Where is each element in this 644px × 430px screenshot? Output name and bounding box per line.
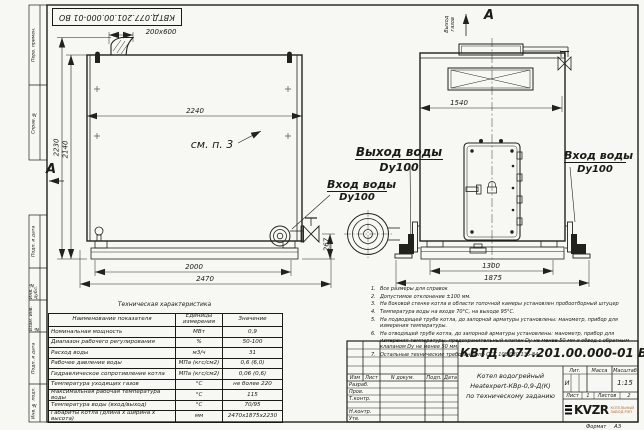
row-tkontr: Т.контр. bbox=[349, 396, 371, 402]
product-name-line2: Heatexpert-КВр-0,9-Д(К) bbox=[459, 383, 562, 389]
lit-value: И bbox=[563, 379, 571, 387]
frame-label-perv-primen: Перв. примен. bbox=[28, 6, 40, 84]
dim-2230: 2230 bbox=[54, 133, 61, 163]
sheet-value: 1 bbox=[582, 393, 594, 399]
tech-row-unit: МПа (кгс/см2) bbox=[176, 369, 223, 380]
row-razrab: Разраб. bbox=[349, 382, 369, 388]
tech-row-value: 70/95 bbox=[223, 401, 282, 412]
tech-row-unit: °С bbox=[176, 401, 223, 412]
format-label: Формат bbox=[586, 424, 606, 430]
col-list: Лист bbox=[363, 375, 380, 381]
tech-row-value: не более 220 bbox=[223, 380, 282, 391]
drawing-sheet: КВТД.077.201.00.000-01 ВО Перв. примен. … bbox=[0, 0, 644, 430]
dim-2000: 2000 bbox=[176, 264, 212, 271]
view-label-a-top: А bbox=[484, 9, 494, 22]
frame-label-sprav-no: Справ. № bbox=[28, 86, 40, 159]
dim-2140: 2140 bbox=[63, 135, 70, 165]
tech-row-name: Номинальная мощность bbox=[49, 327, 176, 338]
top-stamp-designation: КВТД.077.201.00.000-01 ВО bbox=[59, 13, 175, 22]
format-value: А3 bbox=[614, 424, 621, 430]
dim-1540: 1540 bbox=[442, 100, 476, 107]
col-data: Дата bbox=[443, 375, 458, 381]
dim-1300: 1300 bbox=[476, 263, 506, 270]
scale-header: Масштаб bbox=[612, 368, 638, 374]
dim-2240: 2240 bbox=[179, 108, 211, 115]
tech-table-title: Техническая характеристика bbox=[48, 302, 281, 308]
sheets-label: Листов bbox=[594, 393, 620, 399]
tech-row-unit: °С bbox=[176, 380, 223, 391]
scale-value: 1:15 bbox=[612, 379, 638, 387]
callout-water-inlet-mid-dy: Dy100 bbox=[333, 193, 381, 203]
sheet-label: Лист bbox=[563, 393, 582, 399]
callout-water-inlet-right: Вход воды bbox=[564, 150, 626, 163]
tech-row-unit: мм bbox=[176, 411, 223, 422]
col-doc: N докум. bbox=[380, 375, 425, 381]
tech-col-unit: Единицы измерения bbox=[176, 314, 223, 327]
tech-row-value: 2470х1875х2230 bbox=[223, 411, 282, 422]
tech-row-value: 0,9 bbox=[223, 327, 282, 338]
tech-row-unit: °С bbox=[176, 390, 223, 401]
tech-col-name: Наименование показателя bbox=[49, 314, 176, 327]
top-stamp-box: КВТД.077.201.00.000-01 ВО bbox=[52, 8, 182, 26]
row-nkontr: Н.контр. bbox=[349, 409, 371, 415]
tech-row-value: 0,6 (6,0) bbox=[223, 359, 282, 370]
mass-header: Масса bbox=[587, 368, 612, 374]
callout-water-outlet: Выход воды bbox=[355, 146, 443, 160]
tech-row-name: Диапазон рабочего регулирования bbox=[49, 338, 176, 349]
tech-row-value: 31 bbox=[223, 348, 282, 359]
callout-water-inlet-mid: Вход воды bbox=[327, 179, 387, 192]
tech-col-value: Значение bbox=[223, 314, 282, 327]
section-mark-a-left: А bbox=[46, 163, 56, 176]
tech-row-name: Гидравлическое сопротивление котла bbox=[49, 369, 176, 380]
sheets-value: 2 bbox=[620, 393, 638, 399]
frame-label-vzam-inv: Взам. инв. № bbox=[28, 301, 40, 331]
dim-1875: 1875 bbox=[476, 275, 510, 282]
col-podp: Подп. bbox=[425, 375, 443, 381]
row-utv: Утв. bbox=[349, 416, 360, 422]
col-izm: Изм bbox=[347, 375, 363, 381]
title-block-designation: КВТД .077.201.00.000-01 ВО bbox=[460, 347, 636, 359]
tech-row-name: Рабочее давление воды bbox=[49, 359, 176, 370]
tech-row-unit: МПа (кгс/см2) bbox=[176, 359, 223, 370]
see-note-3-ref: см. п. 3 bbox=[184, 139, 240, 150]
note-item: 2.Допустимое отклонение ±100 мм. bbox=[371, 294, 637, 301]
kvzr-logo: KVZR КОТЕЛЬНЫЙ ЗАВОД РЭП bbox=[565, 400, 637, 420]
dim-267: 267 bbox=[324, 233, 331, 257]
tech-row-name: Габариты котла (длина х ширина х высота) bbox=[49, 411, 176, 422]
tech-row-value: 115 bbox=[223, 390, 282, 401]
tech-table: Наименование показателя Единицы измерени… bbox=[48, 313, 283, 423]
callout-water-outlet-dy: Dy100 bbox=[372, 162, 426, 173]
kvzr-logo-subtitle: КОТЕЛЬНЫЙ ЗАВОД РЭП bbox=[611, 406, 635, 414]
gas-outlet-label: Выход газов bbox=[444, 4, 457, 44]
tech-row-name: Максимальная рабочая температура воды bbox=[49, 390, 176, 401]
kvzr-logo-text: KVZR bbox=[574, 403, 609, 417]
lit-header: Лит. bbox=[563, 368, 587, 374]
tech-row-value: 50-100 bbox=[223, 338, 282, 349]
note-item: 5.На подводящей трубе котла, до запорной… bbox=[371, 317, 637, 330]
row-prov: Пров. bbox=[349, 389, 364, 395]
note-item: 4.Температура воды на входе 70°С, на вых… bbox=[371, 309, 637, 316]
dim-2470: 2470 bbox=[184, 276, 226, 283]
gas-outlet-label-wrap: Выход газов bbox=[441, 4, 458, 44]
frame-label-podp-data-1: Подп. и дата bbox=[28, 216, 40, 267]
frame-label-inv-podl: Инв. № подл. bbox=[28, 385, 40, 421]
frame-label-inv-dubl: Инв. № дубл. bbox=[28, 269, 40, 299]
tech-row-value: 0,06 (0,6) bbox=[223, 369, 282, 380]
kvzr-logo-bars-icon bbox=[565, 405, 572, 416]
callout-water-inlet-right-dy: Dy100 bbox=[572, 165, 618, 175]
product-name-line1: Котел водогрейный bbox=[459, 373, 562, 379]
product-name-line3: по техническому заданию bbox=[459, 393, 562, 399]
tech-row-unit: МВт bbox=[176, 327, 223, 338]
note-item: 1.Все размеры для справок bbox=[371, 286, 637, 293]
note-item: 3.На боковой стенке котла в области топо… bbox=[371, 301, 637, 308]
dim-flue-200x600: 200x600 bbox=[137, 29, 185, 36]
tech-row-name: Расход воды bbox=[49, 348, 176, 359]
frame-label-podp-data-2: Подп. и дата bbox=[28, 333, 40, 383]
tech-row-unit: % bbox=[176, 338, 223, 349]
tech-row-unit: м3/ч bbox=[176, 348, 223, 359]
